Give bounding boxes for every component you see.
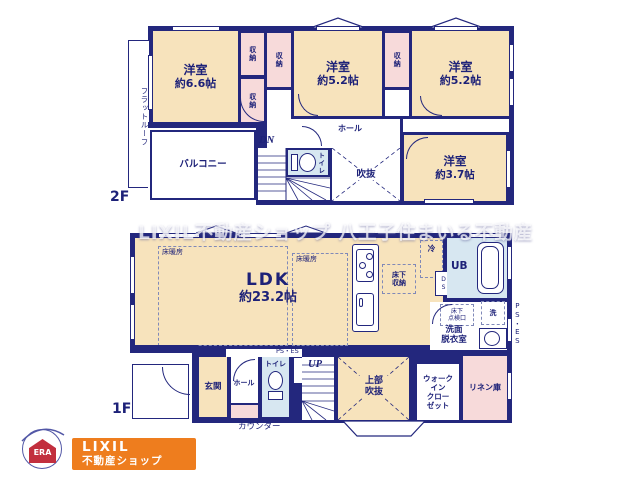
f1-washer: 洗 [481,301,505,325]
lixil-logo-line1: LIXIL [82,440,196,455]
f2-hall-label: ホール [328,124,372,134]
f1-underfloor-storage: 床下 収納 [382,264,416,294]
f1-walk-in-closet: ウォーク イン クロー ゼット [417,364,459,420]
lixil-logo-line2: 不動産ショップ [82,455,196,468]
era-wordmark: ERA [29,448,56,457]
f1-pipe-space-right-label: PS・ES [513,300,521,348]
tub-inner-icon [481,246,499,289]
f2-room-66: 洋室 約6.6帖 [153,31,238,122]
f1-unit-bath-label: UB [451,260,468,273]
f1-counter-label: カウンター [238,422,281,432]
era-logo: ERA [20,427,66,473]
f1-floor-heating-1-label: 床暖房 [162,248,183,256]
f1-wall-ldk-bottom [130,345,198,351]
room-size: 約6.6帖 [175,77,217,90]
sink-icon [356,293,374,326]
f1-entrance: 玄関 [199,357,227,417]
burner-icon [366,271,373,278]
floor-plan-image: フラットルーフ 洋室 約6.6帖 収納 収納 収納 洋室 約5.2帖 収納 洋室… [0,0,640,480]
basin-bowl-icon [484,331,500,346]
window-icon [509,44,514,72]
stove-icon [356,249,374,282]
f1-entry-mat [231,405,258,418]
watermark-text: LIXIL不動産ショップ 八王子住まいる不動産 [138,219,534,245]
f2-flat-roof: フラットルーフ [128,40,150,188]
window-icon [507,318,512,342]
f1-wall-porch-right [192,351,199,423]
window-icon [316,26,360,31]
f1-floor-label: 1F [112,401,131,418]
window-icon [424,199,474,204]
room-name: 洋室 [326,60,350,74]
room-size: 約5.2帖 [440,74,482,87]
window-icon [506,150,511,188]
f2-toilet-label: トイレ [316,150,324,176]
toilet-bowl-icon [268,371,283,390]
window-icon [148,55,153,110]
bathtub-icon [477,242,504,294]
f2-wall-over-balcony [148,122,260,128]
room-size: 約23.2帖 [213,290,323,306]
room-size: 約3.7帖 [435,169,475,182]
toilet-bowl-icon [299,153,316,172]
window-icon [130,304,135,340]
window-icon [507,372,512,400]
f1-ldk-label: LDK 約23.2帖 [213,270,323,306]
f1-linen-closet: リネン庫 [463,356,507,420]
lixil-shop-logo: LIXIL 不動産ショップ [72,438,196,470]
toilet-tank-icon [291,154,298,171]
room-name: LDK [213,270,323,290]
f2-door-area-2 [385,90,409,116]
f2-closet-1: 収納 [241,33,264,75]
f2-stairs-dn-label: DN [259,135,274,148]
f1-floor-heating-2-label: 床暖房 [296,255,317,263]
burner-icon [359,262,366,269]
f1-toilet-label: トイレ [262,360,289,368]
room-name: 洋室 [183,63,207,77]
kitchen-island [352,244,379,332]
f1-washroom-label: 洗面 脱衣室 [431,325,477,345]
window-icon [172,26,220,31]
f2-closet-4: 収納 [385,33,409,87]
room-name: 洋室 [448,60,472,74]
faucet-icon [359,298,363,307]
window-icon [507,246,512,280]
f1-bay-window-icon [343,421,425,438]
washbasin-icon [479,328,507,349]
window-icon [434,26,478,31]
f2-void-label: 吹抜 [344,169,388,180]
f1-stairs-up-label: UP [308,359,322,372]
f1-upper-void-label: 上部 吹抜 [352,376,396,398]
f2-balcony: バルコニー [150,130,256,200]
room-size: 約5.2帖 [317,74,359,87]
f2-corridor [403,119,509,132]
f2-door-area-1 [267,90,291,122]
f1-pipe-space-top-label: PS・ES [276,348,299,356]
toilet-tank-icon [268,391,283,400]
room-name: 洋室 [444,155,467,169]
f2-closet-3: 収納 [267,33,291,87]
window-icon [130,256,135,294]
burner-icon [366,253,373,260]
window-icon [509,78,514,106]
f2-floor-label: 2F [110,189,129,206]
f1-toilet-room: トイレ [262,357,289,417]
